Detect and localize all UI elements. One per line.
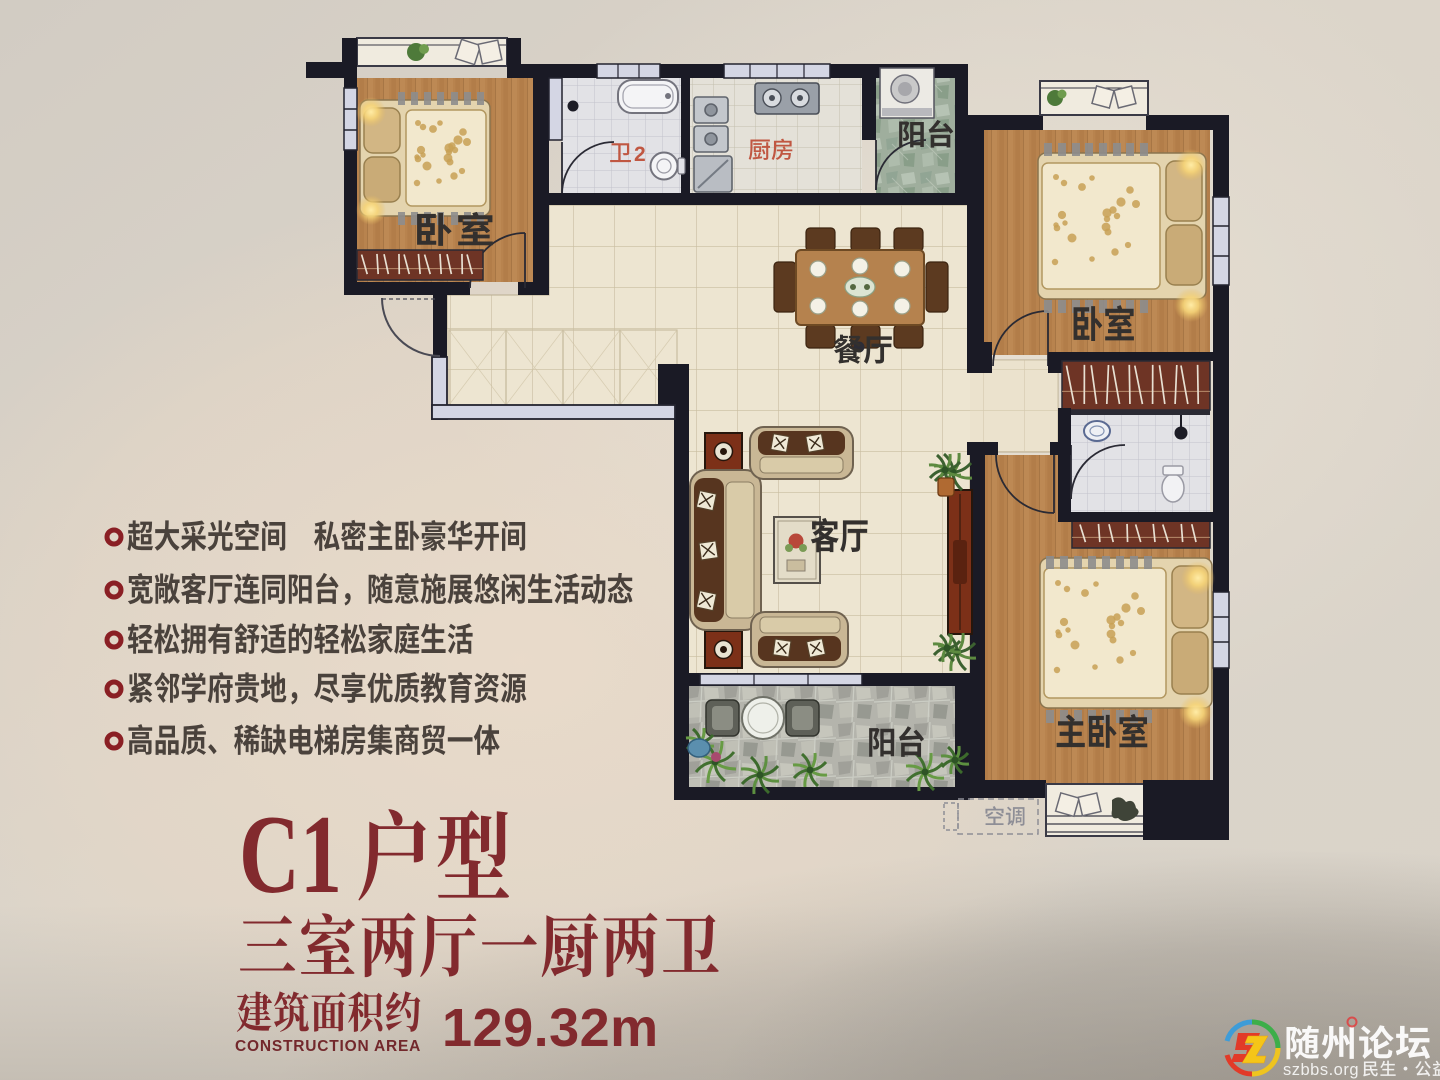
- svg-text:C1: C1: [239, 793, 342, 917]
- svg-text:2: 2: [634, 143, 646, 166]
- svg-text:szbbs.org: szbbs.org: [1283, 1061, 1359, 1079]
- svg-text:129.32m: 129.32m: [442, 998, 659, 1058]
- svg-text:CONSTRUCTION AREA: CONSTRUCTION AREA: [235, 1038, 421, 1055]
